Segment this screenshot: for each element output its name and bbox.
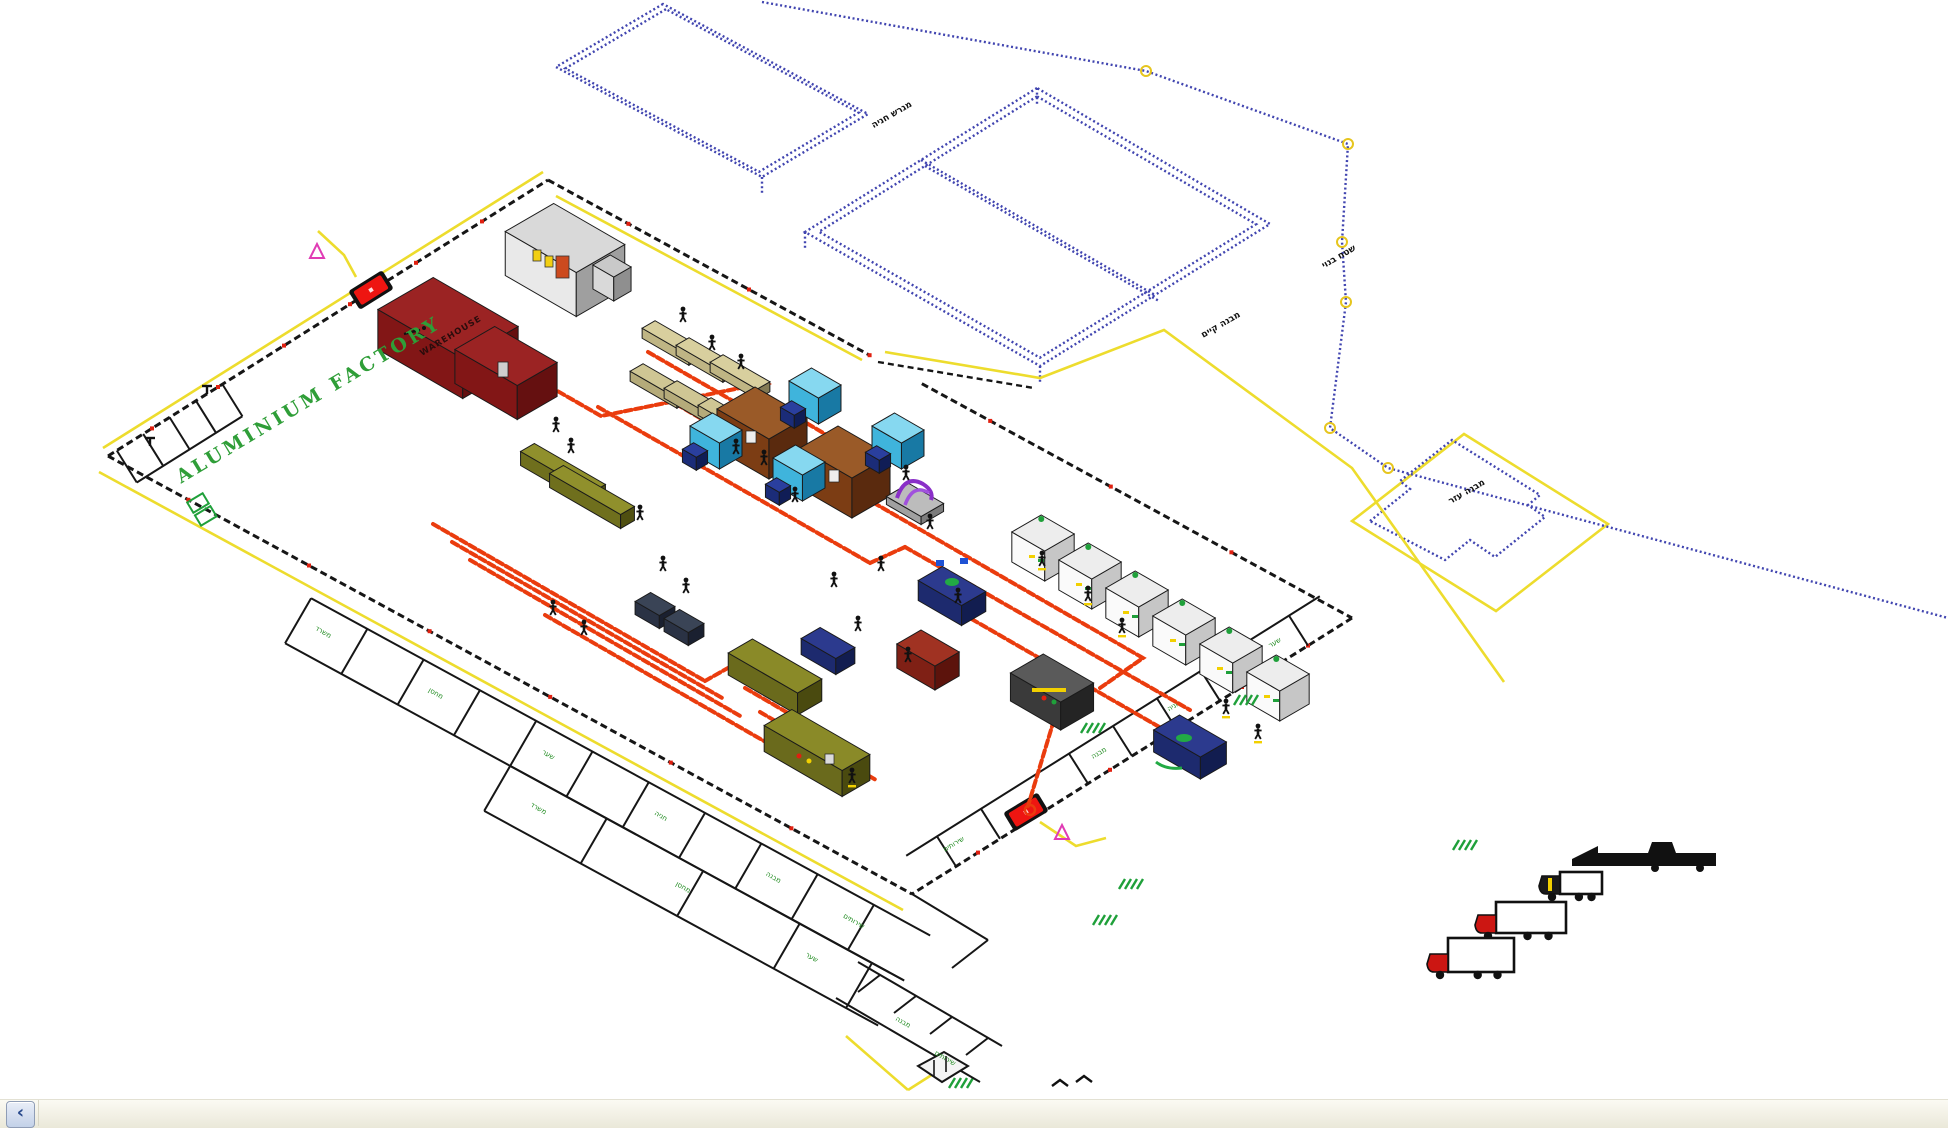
boundary-tick <box>747 288 751 292</box>
cad-viewport[interactable]: משרדמחסןשערחניהמבנהשירותיםמשרדמחסןשערשער… <box>0 0 1948 1100</box>
boundary-tick <box>414 261 418 265</box>
perimeter-room-label: משרד <box>529 801 548 817</box>
trucks-layer <box>1427 842 1716 979</box>
factory-title-label: ALUMINIUM FACTORY <box>172 312 446 489</box>
vegetation-hatch <box>1125 879 1131 889</box>
scroll-left-button[interactable]: ‹ <box>6 1101 35 1128</box>
vegetation-hatch <box>967 1078 973 1088</box>
small-navy-machine[interactable] <box>664 610 704 646</box>
chevron-left-icon: ‹ <box>17 1104 24 1122</box>
road-node <box>1383 463 1393 473</box>
boundary-tick <box>976 851 980 855</box>
perimeter-room-label: מבנה <box>1090 745 1108 760</box>
vegetation-hatch <box>1105 915 1111 925</box>
lot-label: שטח בנוי <box>1320 243 1358 271</box>
purple-press-machine[interactable] <box>886 481 943 524</box>
vegetation-hatch <box>1093 723 1099 733</box>
vacant-lot-a[interactable] <box>556 4 868 177</box>
olive-machine[interactable] <box>550 466 635 529</box>
boundary-tick <box>626 222 630 226</box>
vegetation-hatch <box>1465 840 1471 850</box>
road-node <box>1325 423 1335 433</box>
vegetation-hatch <box>1137 879 1143 889</box>
navy-machine[interactable] <box>1154 715 1227 779</box>
worker-figure[interactable] <box>636 505 643 520</box>
perimeter-room-label: מחסן <box>427 686 445 701</box>
perimeter-room-label: חניה <box>653 809 669 823</box>
worker-figure[interactable] <box>830 572 837 587</box>
worker-figure[interactable] <box>580 620 587 635</box>
perimeter-room-label: מבנה <box>894 1015 912 1030</box>
olive-machine[interactable] <box>764 710 870 797</box>
assembly-machine[interactable] <box>1010 654 1093 730</box>
boundary-tick <box>1109 485 1113 489</box>
small-navy-machine[interactable] <box>801 628 855 675</box>
worker-figure[interactable] <box>708 335 715 350</box>
vegetation-hatch <box>1099 915 1105 925</box>
boundary-tick <box>1108 768 1112 772</box>
vegetation-hatch <box>1081 723 1087 733</box>
navy-machine[interactable] <box>918 558 986 626</box>
worker-figure[interactable] <box>552 417 559 432</box>
vegetation-hatch <box>1240 695 1246 705</box>
boundary-tick <box>669 761 673 765</box>
boundary-tick <box>868 353 872 357</box>
box-truck[interactable] <box>1475 902 1566 940</box>
perimeter-room-label: שער <box>804 951 820 965</box>
vegetation-hatch <box>1234 695 1240 705</box>
lot-label: מבנה קיים <box>1200 310 1243 340</box>
vegetation-hatch <box>949 1078 955 1088</box>
vegetation-hatch <box>1131 879 1137 889</box>
factory-site-drawing[interactable]: משרדמחסןשערחניהמבנהשירותיםמשרדמחסןשערשער… <box>0 0 1948 1100</box>
worker-figure[interactable] <box>659 556 666 571</box>
boundary-tick <box>789 826 793 830</box>
worker-figure[interactable] <box>567 438 574 453</box>
box-truck[interactable] <box>1427 938 1514 979</box>
site-boundary-layer <box>108 180 1352 894</box>
boundary-tick <box>480 219 484 223</box>
box-truck[interactable] <box>1539 872 1602 901</box>
boundary-tick <box>150 426 154 430</box>
conveyor-line[interactable] <box>870 547 905 563</box>
scrollbar-track[interactable] <box>38 1100 1948 1126</box>
vegetation-hatch <box>1087 723 1093 733</box>
horizontal-scrollbar: ‹ <box>0 1099 1948 1128</box>
perimeter-room-label: שער <box>1267 636 1283 650</box>
perimeter-room-label: שירותים <box>842 912 866 931</box>
vegetation-hatch <box>1093 915 1099 925</box>
lot-label: מבנה עזר <box>1447 478 1487 507</box>
vegetation-hatch <box>1471 840 1477 850</box>
worker-figure[interactable] <box>679 307 686 322</box>
office-building[interactable] <box>505 204 631 317</box>
buildings-layer: WAREHOUSE <box>378 204 631 420</box>
vegetation-hatch <box>1119 879 1125 889</box>
vegetation-hatch <box>1453 840 1459 850</box>
boundary-tick <box>307 564 311 568</box>
flatbed-truck[interactable] <box>1572 842 1716 872</box>
vegetation-hatch <box>1111 915 1117 925</box>
boundary-tick <box>348 302 352 306</box>
lot-label: מגרש חניה <box>870 100 914 131</box>
worker-figure[interactable] <box>682 578 689 593</box>
worker-figure[interactable] <box>854 616 861 631</box>
worker-figure[interactable] <box>1222 699 1229 714</box>
boundary-tick <box>282 344 286 348</box>
vegetation-hatch <box>1459 840 1465 850</box>
perimeter-room-label: מבנה <box>764 870 782 885</box>
direction-marker <box>310 244 324 258</box>
machines-layer <box>521 321 1310 797</box>
vegetation-hatch <box>955 1078 961 1088</box>
worker-figure[interactable] <box>1254 724 1261 739</box>
blue-wireframe-layer <box>556 2 1948 618</box>
boundary-tick <box>988 419 992 423</box>
perimeter-room-label: משרד <box>314 624 333 640</box>
boundary-tick <box>1229 550 1233 554</box>
vegetation-hatch <box>961 1078 967 1088</box>
boundary-tick <box>428 629 432 633</box>
perimeter-room-label: שער <box>541 748 557 762</box>
boundary-tick <box>216 385 220 389</box>
perimeter-room-label: שירותים <box>942 835 966 854</box>
boundary-tick <box>548 695 552 699</box>
yellow-roads-layer <box>99 172 1504 1090</box>
